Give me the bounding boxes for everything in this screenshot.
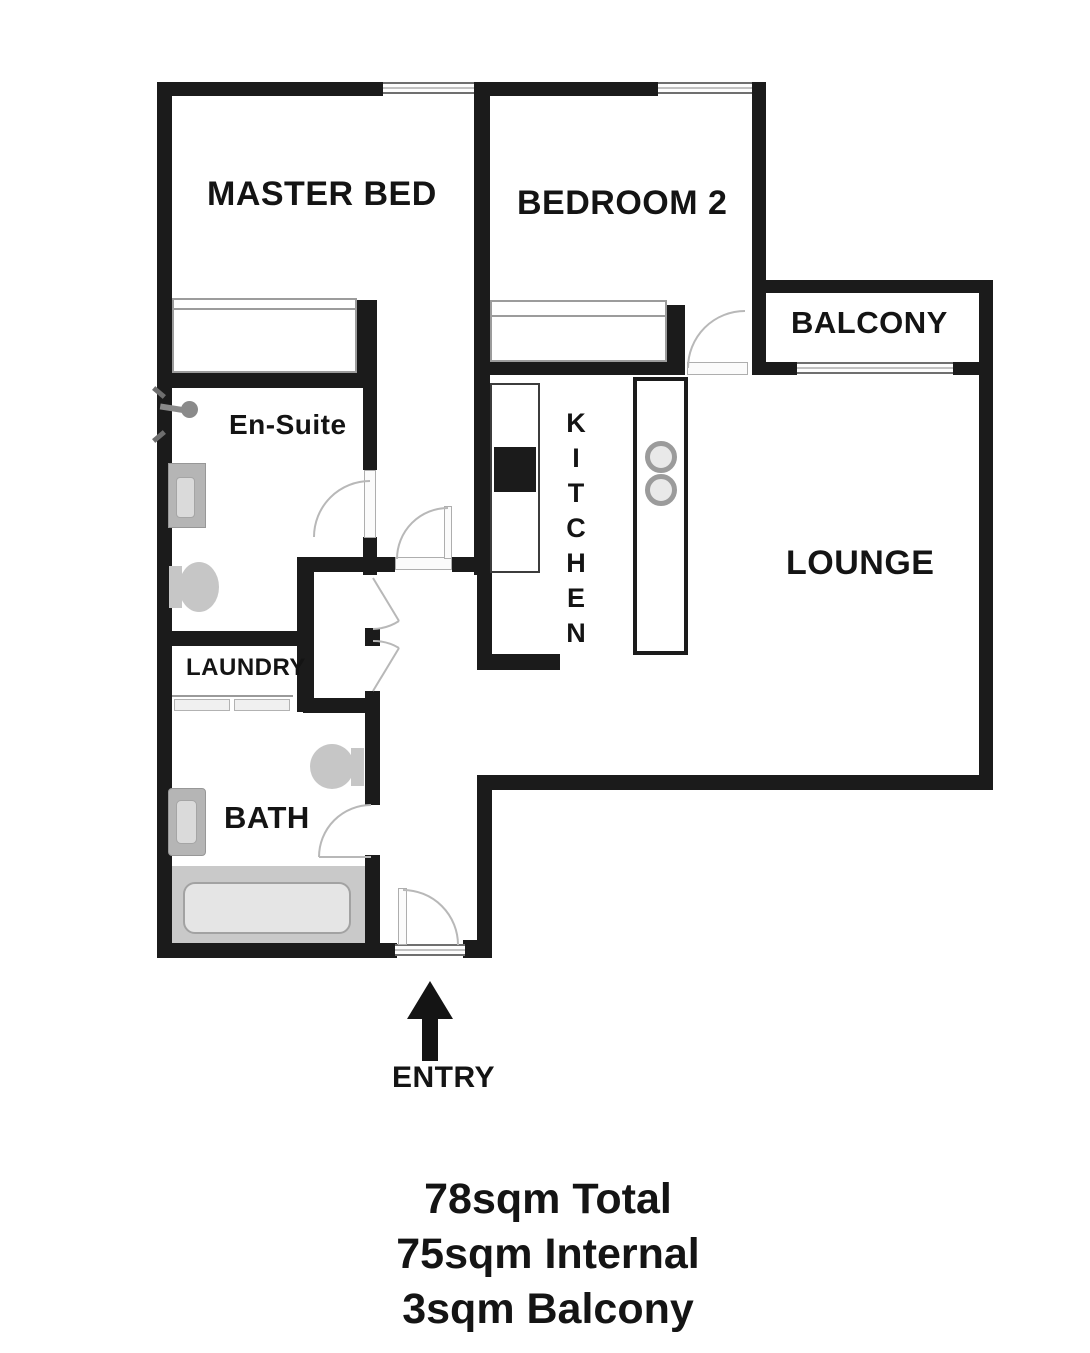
entry-door-arc (403, 890, 458, 945)
hall-door-arc (397, 508, 448, 559)
room-label-bath: BATH (224, 800, 310, 836)
summary-balcony: 3sqm Balcony (3, 1282, 1090, 1337)
ensuite-door-arc (314, 481, 370, 537)
room-label-laundry: LAUNDRY (186, 654, 306, 682)
summary-internal: 75sqm Internal (3, 1227, 1090, 1282)
room-label-kitchen: KITCHEN (560, 408, 591, 643)
room-label-en-suite: En-Suite (229, 409, 347, 441)
room-label-master-bed: MASTER BED (207, 175, 437, 214)
entry-label: ENTRY (392, 1061, 495, 1095)
closet-door-leaf (373, 648, 399, 691)
entry-arrow-icon (407, 981, 453, 1019)
closet-door-leaf (373, 578, 399, 621)
area-summary: 78sqm Total 75sqm Internal 3sqm Balcony (3, 1172, 1090, 1337)
room-label-lounge: LOUNGE (786, 544, 934, 583)
room-label-balcony: BALCONY (791, 305, 948, 341)
entry-arrow-shaft (422, 1017, 438, 1061)
floor-plan: MASTER BED BEDROOM 2 BALCONY En-Suite KI… (0, 0, 1090, 1353)
summary-total: 78sqm Total (3, 1172, 1090, 1227)
bath-door-arc (319, 805, 371, 857)
room-label-bedroom-2: BEDROOM 2 (517, 184, 727, 223)
closet-door-arc (373, 641, 399, 648)
closet-door-arc (373, 621, 399, 629)
lounge-door-arc (688, 311, 745, 368)
